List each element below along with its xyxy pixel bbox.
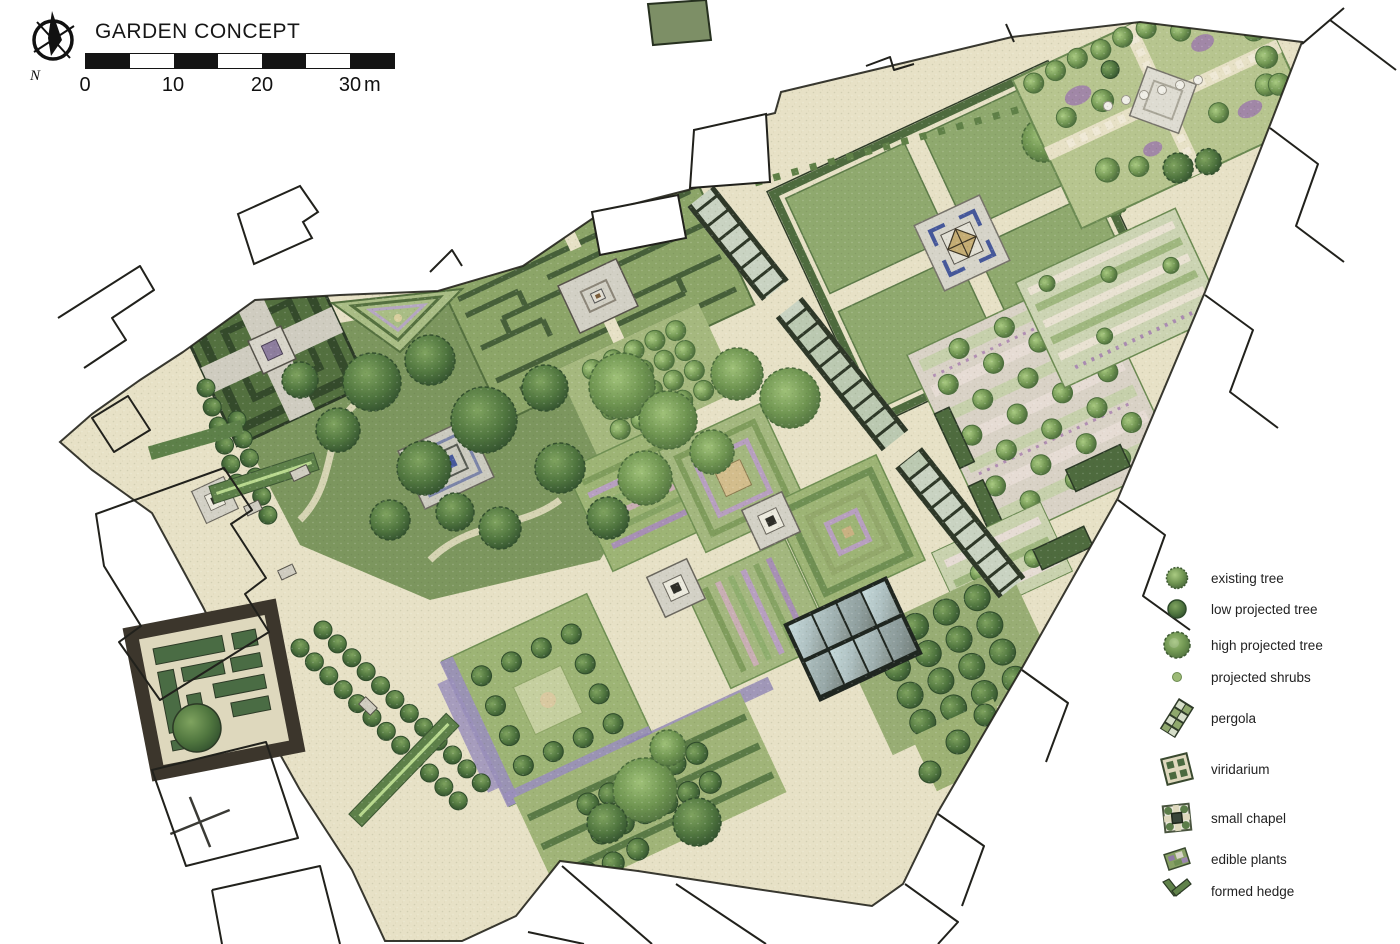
existing-building — [648, 0, 711, 45]
scale-label-20: 20 — [251, 74, 273, 97]
north-arrow-icon: N — [24, 8, 82, 86]
pergola-icon — [1158, 698, 1196, 738]
legend-item-edible-plants: edible plants — [1158, 841, 1287, 877]
small-chapel-icon — [1158, 799, 1196, 837]
edible-plants-icon — [1158, 842, 1196, 876]
scale-bar — [85, 53, 395, 69]
scale-label-0: 0 — [79, 74, 90, 97]
garden-concept-plan: N /* compass N text bound below via data… — [0, 0, 1400, 944]
paper-grain — [60, 22, 1302, 941]
legend-item-pergola: pergola — [1158, 700, 1256, 736]
legend-item-projected-shrubs: projected shrubs — [1158, 659, 1311, 695]
svg-text:N: N — [29, 68, 41, 84]
page-title: GARDEN CONCEPT — [95, 20, 300, 44]
legend-item-high-projected-tree: high projected tree — [1158, 627, 1323, 663]
legend-item-low-projected-tree: low projected tree — [1158, 591, 1318, 627]
low-projected-tree-icon — [1158, 592, 1196, 626]
projected-shrubs-icon — [1158, 660, 1196, 694]
legend-item-small-chapel: small chapel — [1158, 800, 1286, 836]
scale-label-10: 10 — [162, 74, 184, 97]
scale-unit: m — [364, 74, 381, 97]
cross-symbol — [160, 785, 240, 859]
legend-item-formed-hedge: formed hedge — [1158, 873, 1294, 909]
existing-tree-icon — [1158, 561, 1196, 595]
legend-item-viridarium: viridarium — [1158, 751, 1270, 787]
high-projected-tree-icon — [1158, 628, 1196, 662]
scale-label-30: 30 — [339, 74, 361, 97]
formed-hedge-icon — [1158, 874, 1196, 908]
viridarium-icon — [1158, 750, 1196, 788]
